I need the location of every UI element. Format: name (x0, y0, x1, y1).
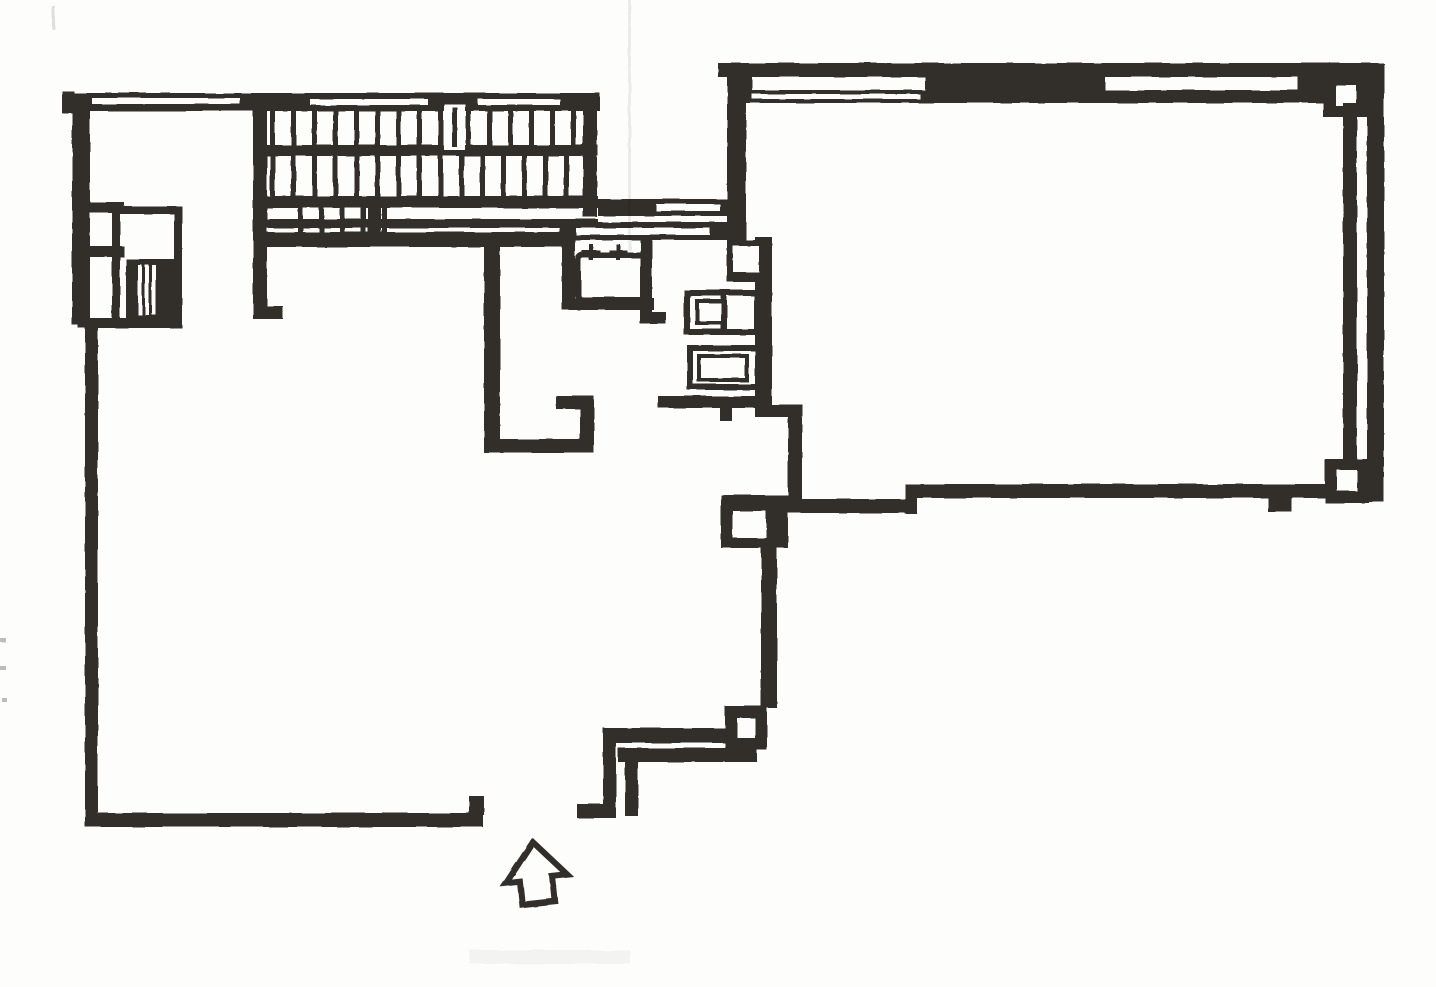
stair-bottom-wall (253, 232, 570, 247)
closet-wall-bottom (484, 439, 582, 453)
right-room-top-wall-chunk (925, 76, 1105, 91)
kitchen-stub-tick (720, 406, 732, 421)
right-room-right-wall-inner (1343, 103, 1357, 465)
right-room-left-wall (727, 73, 746, 243)
stair-treads-upper (375, 110, 380, 146)
stair-treads-lower (417, 156, 422, 196)
stair-treads-upper (354, 110, 359, 146)
stair-treads-lower (459, 156, 464, 196)
kitchen-wall-jog (755, 405, 803, 417)
door-jamb-tick (469, 796, 484, 815)
faucet-icon (589, 244, 593, 260)
vestibule-stub (577, 804, 605, 818)
stair-treads-short (361, 208, 366, 232)
sink-basin (578, 255, 646, 300)
stair-treads-upper (571, 110, 576, 146)
stair-walkway-bottom-edge (253, 219, 598, 228)
elevator-car-slat (138, 265, 142, 315)
stair-break-line (452, 107, 457, 147)
closet-wall-vertical (484, 237, 500, 453)
stair-treads-short (382, 208, 387, 232)
stair-treads-lower (564, 156, 569, 196)
stair-treads-lower (480, 156, 485, 196)
right-room-right-wall-outer (1367, 63, 1384, 502)
kitchen-stub (658, 396, 758, 408)
stair-treads-upper (466, 110, 471, 146)
stair-treads-lower (333, 156, 338, 196)
stair-treads-short (319, 208, 324, 232)
stair-treads-upper (438, 110, 443, 146)
stair-treads-upper (291, 110, 296, 146)
scan-dash (52, 6, 55, 30)
stair-treads-upper (396, 110, 401, 146)
right-room-bottom-wall-right (905, 484, 1329, 498)
faucet-icon (616, 244, 620, 260)
stair-treads-lower (291, 156, 296, 196)
wall-niche-core (733, 246, 759, 272)
elevator-car-slat (152, 265, 156, 315)
stair-treads-lower (543, 156, 548, 196)
stair-left-wall-foot (253, 306, 283, 319)
vestibule-outer-wall-horizontal (603, 728, 730, 743)
right-room-top-wall-slot (752, 94, 920, 99)
column-bottom-right-core (1337, 470, 1357, 491)
scan-crease (628, 0, 631, 250)
appliance-box-1-inner (697, 301, 725, 323)
stair-treads-short (298, 208, 303, 232)
stair-treads-lower (312, 156, 317, 196)
elevator-car-slat (145, 265, 149, 315)
stair-treads-lower (375, 156, 380, 196)
elevator-car-block (126, 259, 176, 321)
stair-walkway-top-edge (253, 196, 598, 208)
vestibule-inner-wall-horizontal (618, 748, 757, 762)
stair-treads-lower (438, 156, 443, 196)
stair-treads-upper (312, 110, 317, 146)
stair-treads-upper (550, 110, 555, 146)
corridor-wall-upper-slot (656, 204, 720, 211)
stair-treads-lower (270, 156, 275, 196)
stair-treads-short (340, 208, 345, 232)
column-top-right-core (1336, 85, 1356, 106)
right-room-wall-connector (1298, 68, 1324, 98)
stair-treads-upper (508, 110, 513, 146)
stair-mid-rail (253, 145, 598, 156)
appliance-box-2-inner (699, 356, 747, 380)
corridor-wall-lower-slot (576, 228, 710, 235)
stair-walkway-post (368, 199, 381, 235)
column-upper-core (733, 511, 766, 538)
scan-dash (2, 698, 7, 702)
column-lower-core (737, 718, 755, 738)
wall-top-window-slot (92, 98, 240, 104)
stair-treads-lower (522, 156, 527, 196)
scan-smudge (470, 950, 630, 964)
closet-stub-vertical (580, 396, 594, 453)
kitchen-wall-lower (788, 417, 802, 501)
wall-top-window-slot (310, 99, 428, 105)
scan-dash (0, 666, 6, 670)
stair-treads-lower (501, 156, 506, 196)
stair-treads-upper (487, 110, 492, 146)
stair-treads-upper (333, 110, 338, 146)
stair-treads-lower (354, 156, 359, 196)
sink-enclosure-foot (640, 312, 666, 324)
right-room-top-wall-outer (718, 63, 1383, 77)
right-room-bottom-wall-left (788, 499, 910, 513)
floor-plan-canvas (0, 0, 1436, 987)
column-wall (761, 548, 777, 708)
right-room-bottom-tick (1268, 497, 1292, 512)
stair-treads-lower (396, 156, 401, 196)
wall-left-lower (85, 325, 98, 827)
wall-bottom-left (88, 813, 483, 827)
floor-plan-sheet (0, 0, 1436, 987)
stair-left-wall (253, 107, 267, 235)
vestibule-inner-wall-vertical (625, 748, 638, 816)
stair-left-wall-extension (253, 245, 267, 313)
stair-treads-upper (417, 110, 422, 146)
scan-dash (0, 638, 6, 642)
stair-treads-upper (270, 110, 275, 146)
entrance-arrow-icon (502, 839, 570, 906)
wall-top-window-slot (478, 99, 560, 105)
plan-walls-layer (0, 0, 1384, 964)
stair-treads-upper (529, 110, 534, 146)
